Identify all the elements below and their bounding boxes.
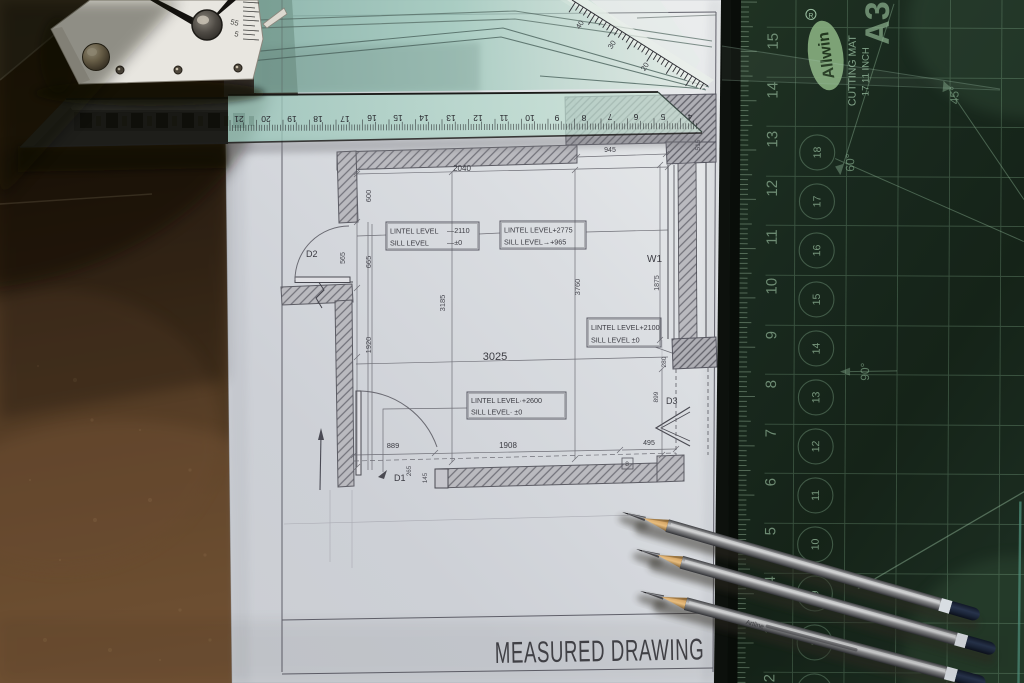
svg-text:21: 21: [234, 114, 244, 124]
svg-text:14: 14: [419, 113, 429, 123]
svg-text:—2110: —2110: [447, 226, 470, 235]
svg-text:3185: 3185: [438, 295, 447, 312]
svg-text:1908: 1908: [499, 441, 517, 450]
svg-text:A3: A3: [859, 1, 897, 45]
svg-text:11: 11: [499, 113, 508, 123]
svg-text:13: 13: [764, 131, 781, 148]
svg-text:D2: D2: [306, 249, 318, 259]
svg-text:7: 7: [763, 429, 780, 437]
svg-text:5: 5: [660, 112, 665, 122]
svg-text:18: 18: [313, 114, 323, 124]
svg-text:17: 17: [340, 114, 350, 124]
svg-text:1875: 1875: [654, 275, 661, 291]
svg-text:3760: 3760: [573, 279, 582, 296]
svg-text:899: 899: [653, 391, 660, 402]
svg-text:15: 15: [811, 293, 823, 305]
svg-text:SILL LEVEL ±0: SILL LEVEL ±0: [591, 336, 640, 345]
svg-text:20: 20: [261, 114, 271, 124]
svg-text:7: 7: [607, 112, 612, 122]
svg-text:600: 600: [364, 190, 373, 203]
svg-text:16: 16: [811, 244, 823, 256]
svg-text:13: 13: [446, 113, 456, 123]
svg-text:12: 12: [764, 180, 781, 197]
svg-text:11: 11: [764, 229, 781, 245]
svg-text:10: 10: [763, 278, 780, 295]
svg-text:12: 12: [473, 113, 483, 123]
svg-text:LINTEL LEVEL+2775: LINTEL LEVEL+2775: [504, 226, 573, 235]
svg-text:9: 9: [763, 331, 780, 339]
svg-text:60°: 60°: [843, 153, 857, 171]
svg-text:280: 280: [661, 356, 668, 367]
svg-text:15: 15: [765, 33, 782, 50]
svg-text:W1: W1: [647, 254, 662, 265]
svg-text:LINTEL LEVEL: LINTEL LEVEL: [390, 227, 438, 236]
svg-text:8: 8: [581, 113, 586, 123]
svg-text:2040: 2040: [453, 164, 471, 173]
svg-text:R: R: [808, 13, 813, 20]
svg-text:665: 665: [364, 256, 373, 269]
svg-text:SILL LEVEL: SILL LEVEL: [390, 239, 429, 248]
svg-text:8: 8: [763, 380, 780, 388]
svg-text:18: 18: [812, 146, 824, 158]
svg-text:LINTEL LEVEL+2100: LINTEL LEVEL+2100: [591, 323, 660, 332]
svg-text:145: 145: [422, 472, 429, 483]
svg-text:10: 10: [525, 113, 535, 123]
svg-text:5: 5: [762, 527, 779, 535]
svg-text:945: 945: [604, 147, 616, 154]
svg-text:12: 12: [810, 440, 822, 452]
svg-text:13: 13: [810, 391, 822, 403]
svg-text:6: 6: [633, 112, 638, 122]
svg-text:D1: D1: [394, 473, 406, 483]
svg-text:SILL LEVEL→+965: SILL LEVEL→+965: [504, 238, 566, 247]
svg-text:14: 14: [811, 342, 823, 354]
svg-text:—±0: —±0: [447, 238, 462, 247]
svg-text:495: 495: [643, 440, 655, 447]
svg-text:6: 6: [762, 478, 779, 486]
svg-text:SILL LEVEL· ±0: SILL LEVEL· ±0: [471, 408, 522, 417]
svg-text:D3: D3: [666, 396, 678, 406]
svg-text:16: 16: [367, 113, 377, 123]
svg-text:LINTEL LEVEL·+2600: LINTEL LEVEL·+2600: [471, 396, 542, 405]
svg-text:8: 8: [625, 461, 629, 468]
svg-text:11: 11: [810, 490, 822, 501]
svg-text:19: 19: [287, 114, 297, 124]
svg-text:9: 9: [554, 113, 559, 123]
svg-text:17: 17: [811, 195, 823, 207]
svg-text:15: 15: [393, 113, 403, 123]
svg-text:565: 565: [340, 252, 347, 264]
svg-text:889: 889: [387, 441, 400, 450]
svg-text:1920: 1920: [364, 337, 373, 354]
svg-text:265: 265: [406, 465, 413, 476]
svg-text:3025: 3025: [483, 351, 507, 363]
svg-text:10: 10: [810, 538, 822, 550]
svg-text:14: 14: [764, 82, 781, 99]
